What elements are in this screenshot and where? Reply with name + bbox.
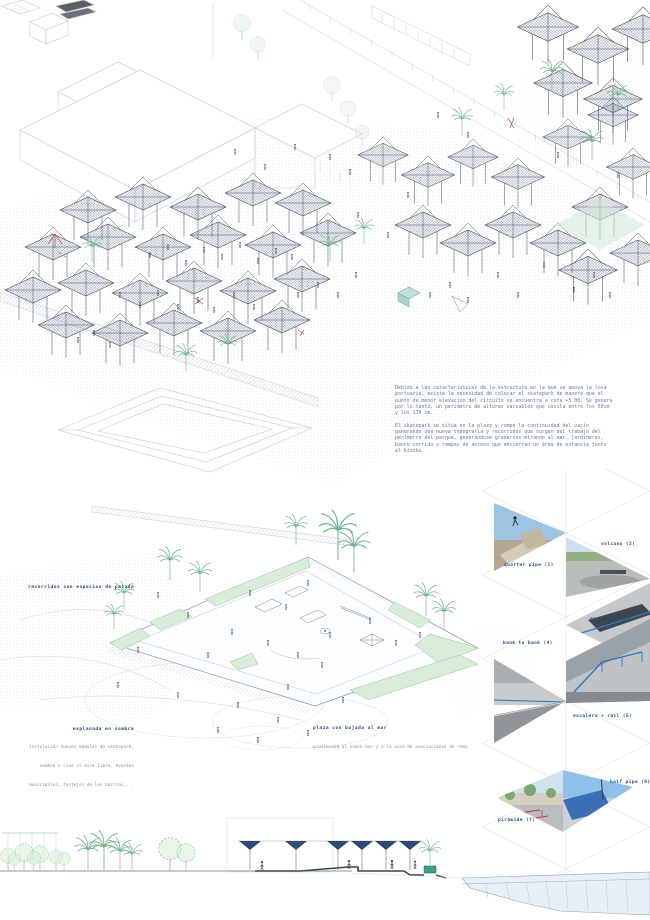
label-explanada-title: explanada en sombra bbox=[22, 727, 134, 732]
photo-label-half-pipe: half pipe (6) bbox=[610, 780, 650, 785]
description-paragraph-2: El skatepark se sitúa en la plaza y romp… bbox=[395, 424, 615, 456]
label-explanada-block: explanada en sombra instalación nuevos m… bbox=[22, 727, 134, 790]
label-plaza-block: plaza con bajada al mar proximidad al sn… bbox=[313, 714, 503, 752]
section-drawing bbox=[0, 818, 650, 915]
photo-label-manualera: manualera (3) bbox=[590, 617, 630, 622]
label-recorridos: recorridos con espacios de parada bbox=[28, 585, 134, 590]
photo-label-quarter-pipe: quarter pipe (1) bbox=[504, 563, 554, 568]
label-explanada-caption: instalación nuevos módulos de skatepark,… bbox=[29, 744, 134, 787]
label-plaza-caption: proximidad al snack-bar y a la zona de a… bbox=[313, 744, 468, 749]
presentation-board: Debido a las características de la estru… bbox=[0, 0, 650, 920]
description-paragraph-1: Debido a las características de la estru… bbox=[395, 386, 615, 418]
photo-label-escalera-rail: escalera + rail (5) bbox=[573, 714, 632, 719]
photo-quarter-pipe bbox=[494, 503, 566, 571]
photo-label-piramide: pirámide (7) bbox=[498, 818, 535, 823]
project-description: Debido a las características de la estru… bbox=[395, 386, 615, 461]
photo-label-volcano: volcano (2) bbox=[601, 542, 635, 547]
label-plaza-title: plaza con bajada al mar bbox=[313, 726, 387, 731]
photo-label-bank-to-bank: bank to bank (4) bbox=[503, 641, 553, 646]
